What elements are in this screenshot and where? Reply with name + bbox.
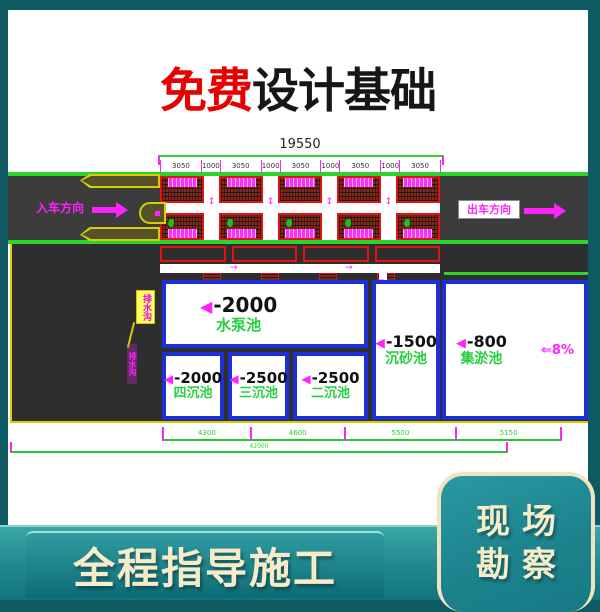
wash-bay [278,176,322,240]
grate-strip [285,178,314,187]
dim-label: 4600 [252,427,346,441]
pool-elevation: ◀-2000 [164,370,222,387]
gap-arrow-icon: ↕ [322,198,337,207]
exit-arrow-icon [524,208,562,214]
dim-label: 4300 [164,427,252,441]
dim-label: 1000 [202,160,221,172]
drain-cell [375,246,441,262]
dim-label: 5500 [346,427,458,441]
annotation-label: 排水沟 [136,290,155,324]
grate-strip [285,229,314,238]
drawing-canvas: 免费设计基础 19550 3050 1000 3050 1000 3050 10… [8,10,588,525]
grate-strip [227,178,256,187]
traffic-island-top [80,174,160,188]
grate-strip [168,178,197,187]
hatch-cell [160,176,204,203]
dim-total-top: 19550 [160,137,440,152]
entry-arrow-icon [92,207,124,213]
slope-label: ⇐8% [541,343,574,358]
footer-bar: 全程指导施工 [26,531,384,598]
pool-fourth-settling: ◀-2000 四沉池 [162,352,224,420]
bay-channel [337,203,381,213]
gap-arrow-icon: ↕ [204,198,219,207]
pool-name: 水泵池 [200,317,277,334]
pool-elevation: ◀-1500 [375,333,437,352]
wash-bay [337,176,381,240]
dim-label: 3050 [340,160,381,172]
channel-arrow-icon: → [345,263,353,273]
hatch-cell [219,176,263,203]
dim-label: 1000 [321,160,340,172]
dim-label: 1000 [381,160,400,172]
under-road-cells [160,246,440,262]
hatch-cell [219,213,263,240]
pool-elevation: ◀-800 [456,333,507,352]
bay-gap: ↕ [322,176,337,240]
title-rest: 设计基础 [252,64,436,119]
dim-label: 5150 [457,427,562,441]
grate-strip [344,229,373,238]
gap-arrow-icon: ↕ [263,198,278,207]
hatch-cell [337,176,381,203]
pool-name: 集淤池 [456,351,507,367]
pool-sludge: ◀-800 集淤池 ⇐8% [442,280,588,420]
drain-channel: → → [160,264,440,273]
pool-second-settling: ◀-2500 二沉池 [293,352,368,420]
wash-bay [219,176,263,240]
grate-strip [227,229,256,238]
wash-bay [160,176,204,240]
pool-marker-icon: ◀ [301,372,310,386]
drain-cell [232,246,298,262]
entry-direction-label: 入车方向 [36,199,84,216]
wash-platform: ↕ ↕ ↕ ↕ [160,176,440,240]
dim-label: 3050 [281,160,322,172]
pool-elevation: ◀-2000 [200,294,277,317]
hatch-cell [278,176,322,203]
pool-pump: ◀-2000 水泵池 [162,280,368,348]
hatch-cell [396,176,440,203]
pool-name: 四沉池 [164,387,222,402]
pool-name: 三沉池 [229,387,287,402]
hatch-cell [278,213,322,240]
grate-strip [403,229,432,238]
pool-marker-icon: ◀ [164,372,173,386]
page-title: 免费设计基础 [8,52,588,121]
bay-channel [396,203,440,213]
hatch-cell [396,213,440,240]
grate-strip [168,229,197,238]
card-line1: 现场 [464,504,568,541]
bay-gap: ↕ [381,176,396,240]
title-highlight: 免费 [160,64,252,119]
pool-marker-icon: ◀ [200,297,212,316]
grate-strip [403,178,432,187]
pool-name: 沉砂池 [375,351,437,367]
pool-grit: ◀-1500 沉砂池 [372,280,440,420]
dim-total-bottom: 42000 [10,442,508,453]
road-edge-segment [444,272,588,275]
bay-channel [160,203,204,213]
pool-name: 二沉池 [301,387,359,402]
hatch-cell [160,213,204,240]
pool-third-settling: ◀-2500 三沉池 [228,352,289,420]
dim-label: 3050 [161,160,202,172]
dim-label: 3050 [400,160,441,172]
site-survey-card: 现场 勘察 [437,472,595,612]
pool-elevation: ◀-2500 [229,370,287,387]
pool-marker-icon: ◀ [375,336,385,351]
hatch-cell [337,213,381,240]
annotation-small-label: 排水沟 [127,344,137,384]
channel-arrow-icon: → [230,263,238,273]
dim-label: 3050 [221,160,262,172]
bay-channel [278,203,322,213]
wash-bay [396,176,440,240]
footer-bar-label: 全程指导施工 [73,535,337,596]
traffic-island-bottom [80,227,160,241]
dim-label: 1000 [262,160,281,172]
drain-cell [303,246,369,262]
drain-cell [160,246,226,262]
grate-strip [344,178,373,187]
bay-channel [219,203,263,213]
pool-elevation: ◀-2500 [301,370,359,387]
pool-marker-icon: ◀ [229,372,238,386]
pool-marker-icon: ◀ [456,336,466,351]
card-line2: 勘察 [464,547,568,584]
bay-gap: ↕ [263,176,278,240]
bottom-dimension-row: 4300 4600 5500 5150 [162,427,562,441]
gap-arrow-icon: ↕ [381,198,396,207]
exit-direction-label: 出车方向 [458,200,520,219]
island-head [139,202,166,224]
bay-gap: ↕ [204,176,219,240]
